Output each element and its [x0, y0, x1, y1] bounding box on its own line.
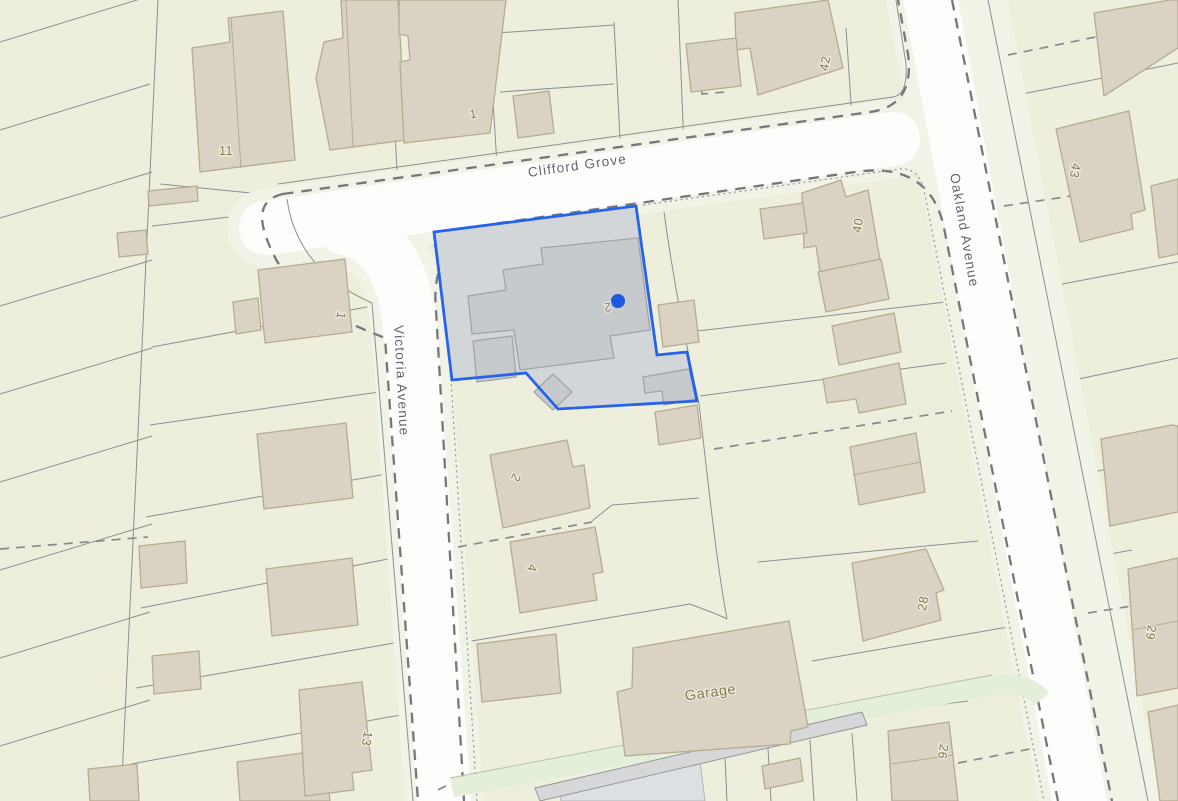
building-neighbor-east-1 — [658, 300, 699, 347]
plot-label-26: 26 — [935, 743, 951, 760]
shed-west-5 — [88, 764, 139, 801]
selected-parcel-marker — [611, 294, 625, 308]
building-40-wing — [760, 203, 807, 239]
plot-label-40: 40 — [850, 217, 866, 234]
building-1-west — [258, 259, 352, 343]
building-neighbor-east-2 — [655, 405, 701, 445]
building-4 — [510, 527, 603, 613]
building-west-mid — [257, 423, 353, 509]
plot-label-28: 28 — [915, 595, 931, 612]
plot-label-11: 11 — [219, 144, 233, 158]
building-1-west-wing — [233, 298, 261, 334]
outbuilding-north — [513, 91, 554, 138]
map-viewport[interactable]: Clifford Grove Oakland Avenue Victoria A… — [0, 0, 1178, 801]
plot-label-13: 13 — [359, 730, 375, 747]
building-west-lower — [266, 558, 358, 636]
shed-west-3 — [139, 541, 187, 588]
shed-west-4 — [152, 651, 201, 694]
building-42-wing — [686, 38, 741, 92]
outbuilding-victoria — [477, 634, 561, 702]
shed-west-2 — [117, 230, 148, 257]
plot-label-29: 29 — [1143, 624, 1159, 641]
building-1-north — [399, 0, 506, 143]
building-east-edge-2 — [1101, 425, 1178, 526]
plot-label-42: 42 — [817, 55, 833, 72]
plot-label-43: 43 — [1067, 162, 1083, 179]
building-26 — [888, 722, 958, 801]
map-canvas[interactable]: Clifford Grove Oakland Avenue Victoria A… — [0, 0, 1178, 801]
